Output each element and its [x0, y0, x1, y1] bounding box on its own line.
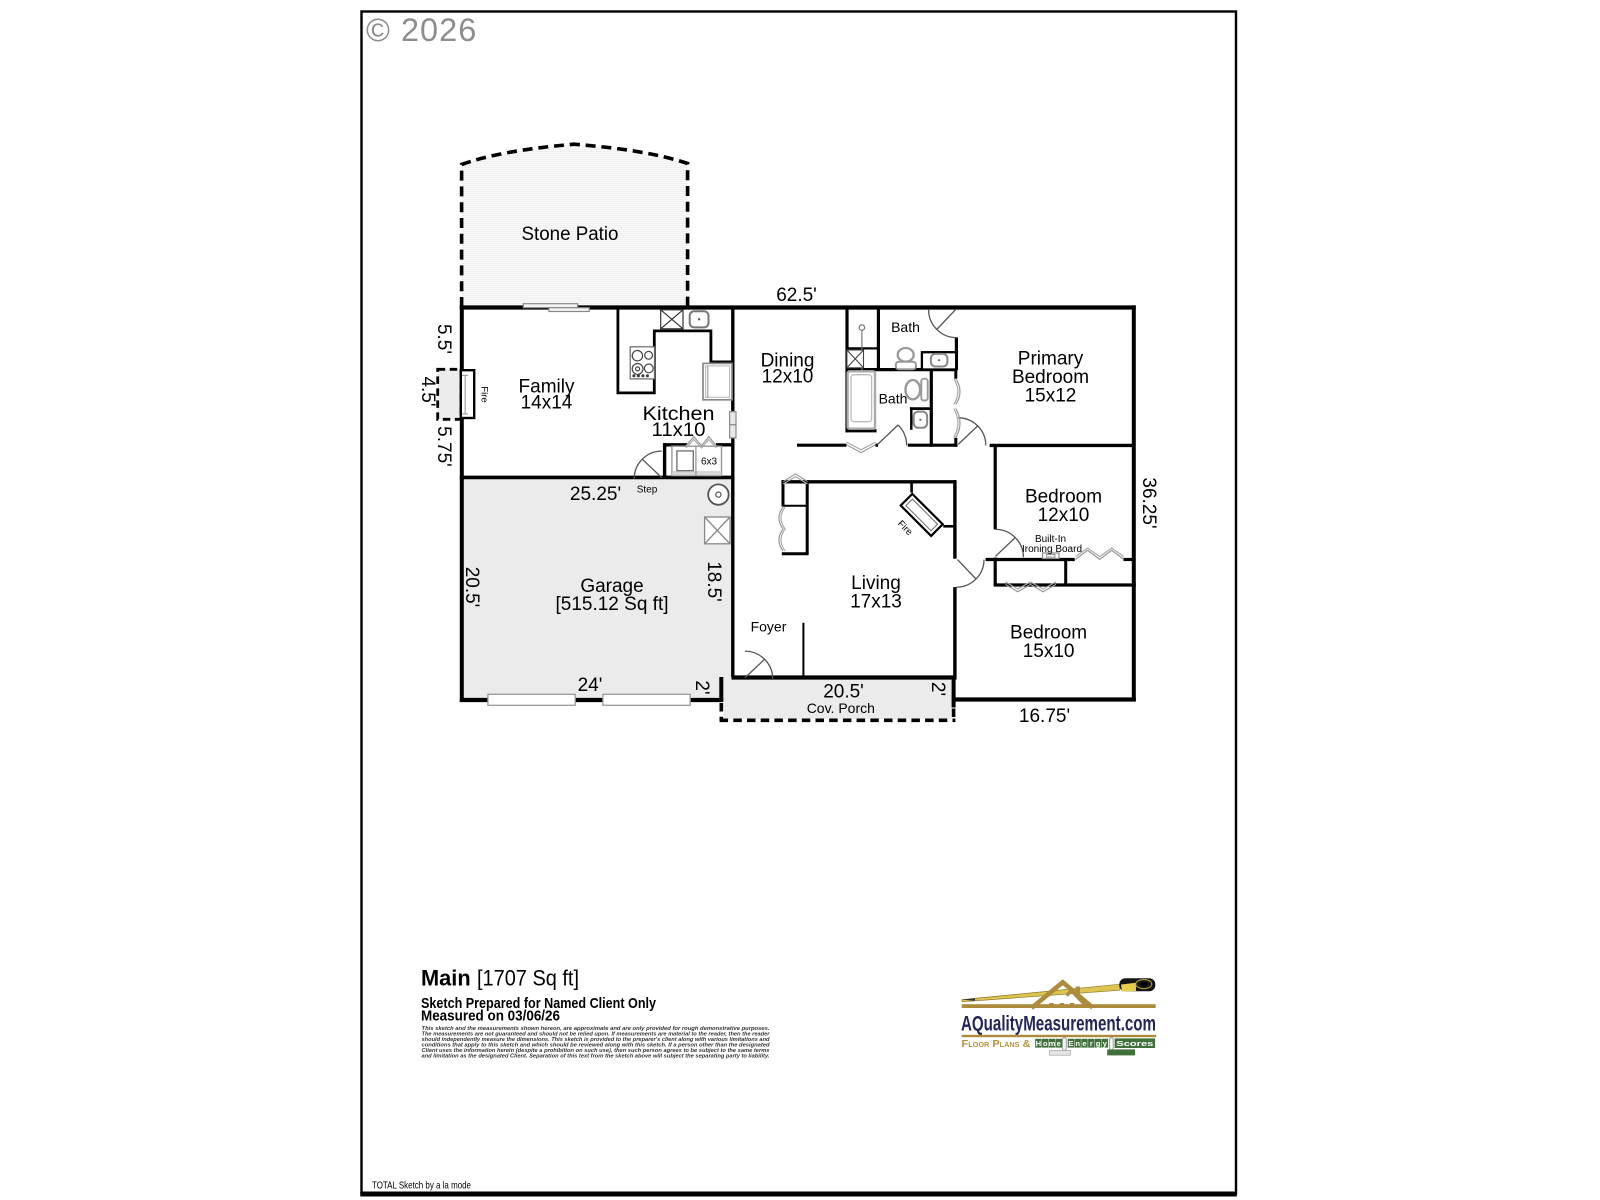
svg-text:15x10: 15x10: [1023, 641, 1075, 662]
svg-text:[515.12 Sq ft]: [515.12 Sq ft]: [555, 594, 668, 615]
svg-text:Stone Patio: Stone Patio: [522, 224, 619, 245]
svg-text:Ironing Board: Ironing Board: [1022, 544, 1082, 555]
svg-text:TOTAL Sketch by a la mode: TOTAL Sketch by a la mode: [372, 1180, 471, 1192]
svg-text:Bath: Bath: [879, 391, 908, 407]
svg-text:6x3: 6x3: [701, 457, 718, 468]
svg-text:20.5': 20.5': [823, 682, 864, 703]
svg-text:15x12: 15x12: [1025, 385, 1077, 406]
svg-text:25.25': 25.25': [570, 484, 621, 505]
svg-text:and limitation as the designat: and limitation as the designated Client.…: [422, 1053, 770, 1059]
svg-text:Scores: Scores: [1116, 1039, 1153, 1048]
svg-text:12x10: 12x10: [762, 367, 814, 388]
svg-text:Main: Main: [421, 966, 471, 991]
svg-text:4.5': 4.5': [417, 376, 438, 406]
svg-text:e: e: [1057, 1039, 1061, 1048]
svg-text:o: o: [1043, 1039, 1048, 1048]
svg-text:© 2026: © 2026: [366, 12, 477, 48]
svg-text:r: r: [1090, 1039, 1093, 1048]
svg-text:2': 2': [927, 682, 948, 696]
svg-text:11x10: 11x10: [652, 420, 706, 441]
svg-text:Measured on 03/06/26: Measured on 03/06/26: [421, 1008, 560, 1025]
svg-text:5.75': 5.75': [433, 426, 454, 467]
svg-text:24': 24': [578, 675, 603, 696]
svg-text:20.5': 20.5': [461, 567, 482, 608]
svg-text:E: E: [1068, 1039, 1073, 1048]
svg-text:36.25': 36.25': [1138, 477, 1159, 528]
svg-text:H: H: [1036, 1039, 1041, 1048]
svg-text:2': 2': [691, 680, 712, 694]
svg-text:17x13: 17x13: [850, 592, 902, 613]
svg-text:18.5': 18.5': [703, 561, 724, 602]
svg-text:5.5': 5.5': [433, 324, 454, 354]
svg-text:n: n: [1075, 1039, 1080, 1048]
svg-text:Bath: Bath: [891, 319, 920, 335]
svg-text:16.75': 16.75': [1019, 706, 1070, 727]
svg-text:g: g: [1096, 1039, 1101, 1048]
svg-text:[1707 Sq ft]: [1707 Sq ft]: [477, 966, 579, 991]
svg-text:Foyer: Foyer: [751, 619, 787, 635]
svg-text:Fire: Fire: [479, 386, 490, 402]
svg-text:14x14: 14x14: [521, 393, 573, 414]
svg-text:Floor Plans &: Floor Plans &: [962, 1038, 1031, 1050]
svg-text:AQualityMeasurement.com: AQualityMeasurement.com: [961, 1012, 1156, 1036]
svg-text:12x10: 12x10: [1038, 505, 1090, 526]
svg-text:m: m: [1049, 1039, 1056, 1048]
svg-text:62.5': 62.5': [776, 285, 817, 306]
svg-text:Step: Step: [637, 485, 658, 496]
svg-text:e: e: [1082, 1039, 1086, 1048]
